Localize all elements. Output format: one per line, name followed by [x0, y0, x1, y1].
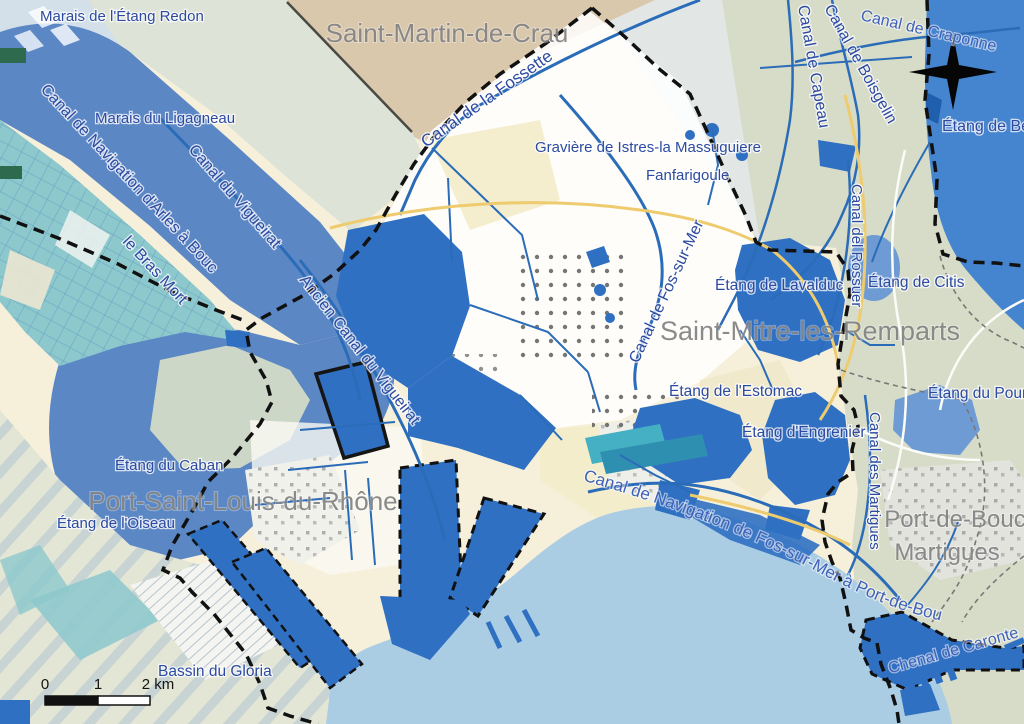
label-saint-mitre-les-remparts: Saint-Mitre-les-Remparts [660, 316, 960, 346]
label-etang-de-berre: Étang de Berre [942, 116, 1024, 135]
label-etang-de-l-estomac: Étang de l'Estomac [669, 383, 802, 400]
terrain-regions [0, 0, 1024, 724]
map-viewport: 0 1 2 km Marais de l'Étang Redon Saint-M… [0, 0, 1024, 724]
label-marais-du-ligagneau: Marais du Ligagneau [95, 110, 235, 127]
label-port-saint-louis-du-rhone: Port-Saint-Louis-du-Rhône [88, 486, 397, 516]
label-canal-del-rossuer: Canal del Rossuer [848, 184, 865, 307]
water-patch [0, 700, 30, 724]
tank-farm [520, 246, 632, 358]
map-canvas: 0 1 2 km Marais de l'Étang Redon Saint-M… [0, 0, 1024, 724]
small-lake [594, 284, 606, 296]
label-martigues: Martigues [894, 539, 999, 566]
label-etang-du-pourra: Étang du Pourra [928, 385, 1024, 402]
scale-bar-segment-white [98, 696, 150, 705]
label-canal-des-martigues: Canal des Martigues [866, 412, 883, 550]
label-bassin-du-gloria: Bassin du Gloria [158, 663, 272, 680]
label-saint-martin-de-crau: Saint-Martin-de-Crau [326, 18, 569, 48]
woodland-patch [0, 48, 26, 63]
label-etang-de-citis: Étang de Citis [868, 274, 965, 291]
label-etang-d-engrenier: Étang d'Engrenier [742, 424, 866, 441]
woodland-patch [0, 166, 22, 179]
label-graviere-istres: Gravière de Istres-la Massuguiere [535, 139, 761, 156]
label-marais-etang-redon: Marais de l'Étang Redon [40, 8, 204, 25]
scale-bar-segment-black [45, 696, 98, 705]
label-port-de-bouc: Port-de-Bouc [884, 506, 1024, 533]
label-etang-du-caban: Étang du Caban [115, 457, 223, 474]
scale-tick-0: 0 [41, 676, 49, 693]
label-etang-de-lavalduc: Étang de Lavalduc [715, 277, 844, 294]
small-lake [605, 313, 615, 323]
scale-tick-1: 1 [94, 676, 102, 693]
label-etang-de-l-oiseau: Étang de l'Oiseau [57, 515, 175, 532]
label-fanfarigoule: Fanfarigoule [646, 167, 729, 184]
